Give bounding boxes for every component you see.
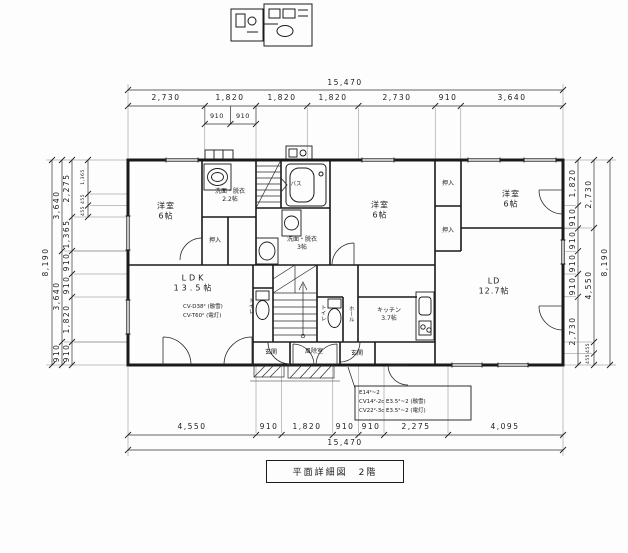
interior-walls bbox=[128, 160, 563, 365]
dim-top-seg1: 2,730 bbox=[152, 93, 181, 103]
washbasin-icon bbox=[204, 164, 231, 190]
room-label-yoshitsu-right: 洋室 6帖 bbox=[502, 190, 520, 211]
dim-left-detail1: 1,365 bbox=[81, 169, 87, 184]
note-line: CV-D38² (融雪) bbox=[183, 303, 223, 312]
dim-bottom-seg3: 1,820 bbox=[293, 422, 322, 432]
dim-right-total: 8,190 bbox=[600, 248, 610, 277]
toilet-icon bbox=[328, 299, 341, 328]
room-name: キッチン bbox=[377, 307, 401, 315]
dim-right-mid4: 455 bbox=[586, 354, 592, 364]
dim-top-sub1: 910 bbox=[210, 112, 224, 120]
room-name: 洗面・脱衣 bbox=[215, 188, 245, 196]
note-line: E14²~2 bbox=[359, 389, 426, 398]
room-label-senmen-small: 洗面・脱衣 2.2帖 bbox=[215, 188, 245, 204]
dim-bottom-seg4: 910 bbox=[336, 422, 355, 432]
room-size: 12.7帖 bbox=[479, 287, 510, 297]
room-label-oshiire-2: 押入 bbox=[442, 180, 454, 188]
dim-bottom-seg6: 2,275 bbox=[402, 422, 431, 432]
room-label-kitchen: キッチン 3.7帖 bbox=[377, 307, 401, 323]
dim-left-detail2: 455 bbox=[81, 194, 87, 204]
room-name: LD bbox=[479, 277, 510, 287]
exterior-wall bbox=[128, 160, 563, 365]
room-size: 2.2帖 bbox=[215, 196, 245, 204]
upper-hatch-icon bbox=[256, 160, 281, 208]
dim-bottom-seg2: 910 bbox=[260, 422, 279, 432]
dim-bottom-seg7: 4,095 bbox=[491, 422, 520, 432]
room-size: 6帖 bbox=[371, 211, 389, 221]
porch-hatching bbox=[250, 365, 340, 381]
dimension-lines bbox=[52, 90, 610, 450]
ldk-cable-note: CV-D38² (融雪) CV-T60² (電灯) bbox=[183, 303, 223, 321]
dim-bottom-total: 15,470 bbox=[327, 438, 362, 448]
room-label-yoshitsu-center: 洋室 6帖 bbox=[371, 201, 389, 222]
electrical-note: E14²~2 CV14²-2c E3.5²~2 (融雪) CV22²-3c E3… bbox=[359, 389, 426, 415]
dim-right-inner6: 2,730 bbox=[568, 317, 578, 346]
room-label-ld: LD 12.7帖 bbox=[479, 277, 510, 298]
dim-top-seg6: 910 bbox=[439, 93, 458, 103]
drawing-title-box: 平面詳細図 2階 bbox=[266, 460, 404, 483]
dim-right-mid2: 4,550 bbox=[584, 271, 594, 300]
note-line: CV-T60² (電灯) bbox=[183, 312, 223, 321]
dim-right-inner5: 910 bbox=[568, 277, 578, 296]
room-label-toilet-1: トイレ bbox=[246, 298, 253, 315]
room-label-genkan-left: 玄関 bbox=[265, 349, 277, 357]
toilet-icon bbox=[256, 291, 269, 320]
dim-top-total: 15,470 bbox=[327, 78, 362, 88]
room-label-oshiire-1: 押入 bbox=[209, 237, 221, 245]
room-size: 13.5帖 bbox=[174, 284, 215, 294]
note-line: CV14²-2c E3.5²~2 (融雪) bbox=[359, 398, 426, 407]
room-size: 3.7帖 bbox=[377, 315, 401, 323]
room-label-hall: ホール bbox=[346, 306, 353, 323]
dimension-ticks bbox=[49, 87, 613, 453]
room-name: LDK bbox=[174, 274, 215, 284]
dim-left-mid2: 3,640 bbox=[52, 282, 62, 311]
kitchen-counter-icon bbox=[416, 292, 434, 340]
room-size: 6帖 bbox=[502, 200, 520, 210]
dim-left-inner1: 2,275 bbox=[62, 174, 72, 203]
dim-right-inner3: 910 bbox=[568, 231, 578, 250]
dim-right-inner4: 910 bbox=[568, 254, 578, 273]
room-label-ldk: LDK 13.5帖 bbox=[174, 274, 215, 295]
dimension-extension-lines bbox=[46, 84, 616, 456]
detail-fragment bbox=[231, 4, 312, 46]
room-label-yoshitsu-topleft: 洋室 6帖 bbox=[157, 202, 175, 223]
stairs-icon bbox=[273, 265, 317, 338]
dim-right-inner1: 1,820 bbox=[568, 169, 578, 198]
dim-left-inner6: 910 bbox=[62, 344, 72, 363]
room-name: 洋室 bbox=[502, 190, 520, 200]
dim-right-inner2: 910 bbox=[568, 208, 578, 227]
floorplan-page: 15,470 2,730 1,820 1,820 1,820 2,730 910… bbox=[0, 0, 628, 553]
dim-top-seg5: 2,730 bbox=[383, 93, 412, 103]
room-label-genkan-right: 玄関 bbox=[351, 350, 363, 358]
dim-left-inner2: 1,365 bbox=[62, 220, 72, 249]
dim-bottom-seg5: 910 bbox=[362, 422, 381, 432]
dim-top-sub2: 910 bbox=[236, 112, 250, 120]
vanity-icon bbox=[256, 238, 278, 264]
room-label-senmen-large: 洗面・脱衣 3帖 bbox=[287, 236, 317, 252]
dim-left-mid1: 3,640 bbox=[52, 191, 62, 220]
room-name: 洋室 bbox=[157, 202, 175, 212]
window-symbols bbox=[126, 158, 566, 368]
drawing-title: 平面詳細図 2階 bbox=[293, 465, 378, 478]
dim-top-seg4: 1,820 bbox=[319, 93, 348, 103]
washer-icon bbox=[282, 210, 301, 236]
dim-top-seg2: 1,820 bbox=[216, 93, 245, 103]
dim-left-mid3: 910 bbox=[52, 344, 62, 363]
dim-top-seg3: 1,820 bbox=[268, 93, 297, 103]
room-label-toilet-2: トイレ bbox=[318, 305, 325, 322]
dim-left-total: 8,190 bbox=[41, 248, 51, 277]
room-label-oshiire-3: 押入 bbox=[442, 227, 454, 235]
note-line: CV22²-3c E3.5²~2 (電灯) bbox=[359, 407, 426, 416]
dim-right-mid1: 2,730 bbox=[584, 180, 594, 209]
dim-left-inner3: 910 bbox=[62, 253, 72, 272]
dim-top-seg7: 3,640 bbox=[498, 93, 527, 103]
dim-left-inner4: 910 bbox=[62, 276, 72, 295]
room-size: 6帖 bbox=[157, 212, 175, 222]
room-name: 洋室 bbox=[371, 201, 389, 211]
dim-left-inner5: 1,820 bbox=[62, 305, 72, 334]
roof-detail bbox=[205, 146, 312, 160]
room-label-fujoshitsu: 風除室 bbox=[305, 348, 323, 356]
dim-right-mid3: 455 bbox=[586, 343, 592, 353]
room-name: 洗面・脱衣 bbox=[287, 236, 317, 244]
room-label-bath: バス bbox=[290, 181, 301, 188]
dim-bottom-seg1: 4,550 bbox=[178, 422, 207, 432]
room-size: 3帖 bbox=[287, 244, 317, 252]
dim-left-detail3: 455 bbox=[81, 206, 87, 216]
